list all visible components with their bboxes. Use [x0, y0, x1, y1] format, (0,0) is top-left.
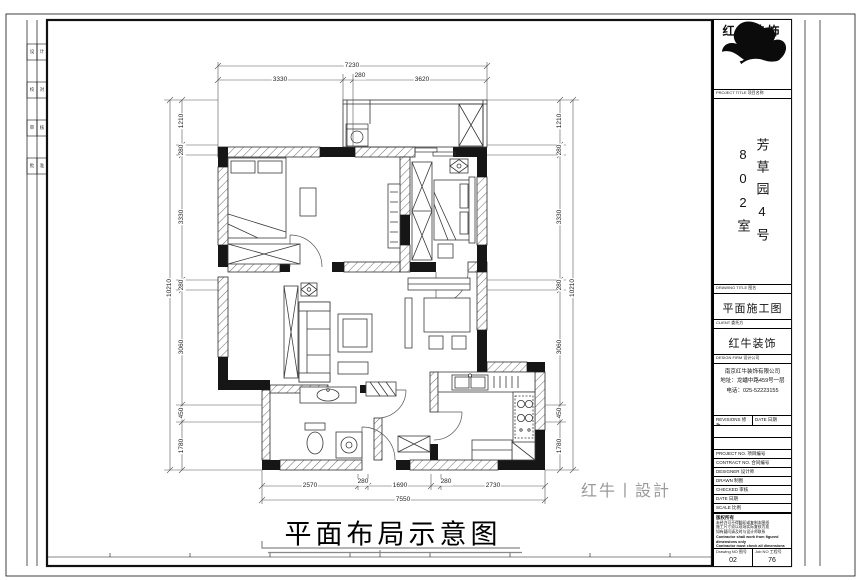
dining-table: [424, 298, 470, 349]
washing-machine: [346, 124, 368, 146]
ac-unit-living: [301, 283, 317, 296]
drawing-title-section: 平面施工图: [714, 294, 791, 320]
binding-cell: 对: [40, 88, 45, 93]
info-row: CONTRACT NO. 合同编号: [714, 459, 791, 468]
hall-cabinet: [366, 382, 396, 396]
client-section: 红牛装饰: [714, 329, 791, 355]
dim-label: 1690: [392, 483, 408, 490]
client-label-row: CLIENT 委托方: [714, 320, 791, 329]
note-line: Contractor shall work from figured dimen…: [716, 535, 789, 544]
toilet: [305, 423, 325, 454]
screen-cabinet: [405, 298, 412, 348]
ac-unit-bedroom: [450, 159, 468, 173]
dim-label: 3060: [179, 339, 186, 355]
binding-cell: 准: [40, 164, 45, 169]
firm-section: 南京红牛装饰有限公司 地址：龙蟠中路459号一层 电话：025-52223155: [714, 364, 791, 416]
dim-label: 2570: [302, 483, 318, 490]
dim-label: 280: [354, 73, 367, 80]
revisions-label: REVISIONS 修改: [714, 416, 753, 426]
shoe-cabinet: [398, 436, 430, 452]
binding-cell: 批: [30, 164, 35, 169]
dim-label: 280: [179, 144, 186, 157]
dim-label: 450: [557, 407, 564, 420]
job-no-label: Job NO 工程号: [755, 550, 789, 555]
project-title-label: PROJECT TITLE 项目名称: [714, 90, 791, 96]
wardrobe-left: [228, 244, 300, 264]
dim-label: 3620: [414, 77, 430, 84]
firm-address: 地址：龙蟠中路459号一层: [717, 378, 788, 387]
drawing-title: 平面施工图: [714, 294, 791, 316]
bed-left: [228, 158, 286, 238]
project-label-row: PROJECT TITLE 项目名称: [714, 90, 791, 99]
dim-label: 2730: [485, 483, 501, 490]
sideboard-dining: [408, 278, 470, 290]
info-row: PROJECT NO. 项目编号: [714, 450, 791, 459]
firm-label-row: DESIGN FIRM 设计公司: [714, 355, 791, 364]
kitchen-counter: [438, 372, 535, 392]
dim-label: 10210: [167, 278, 174, 298]
revisions-header: REVISIONS 修改 DATE 日期: [714, 416, 791, 426]
plan-caption: 平面布局示意图: [285, 513, 502, 552]
date-label: DATE 日期: [753, 416, 791, 426]
vanity-sink: [300, 387, 356, 403]
logo-section: 红牛装饰: [714, 20, 791, 90]
sofa: [299, 302, 330, 382]
sliding-door: [415, 148, 455, 156]
bull-logo-icon: [714, 20, 791, 66]
dresser-left: [388, 184, 400, 248]
dim-label: 280: [357, 479, 370, 486]
dim-label: 280: [440, 479, 453, 486]
drawing-no-value: 02: [716, 557, 750, 564]
info-row: CHECKED 审核: [714, 486, 791, 495]
drawing-no-label: Drawing NO 图号: [716, 550, 750, 555]
dim-label: 1210: [557, 113, 564, 129]
side-table: [338, 362, 368, 374]
firm-label: DESIGN FIRM 设计公司: [714, 355, 791, 361]
info-rows: PROJECT NO. 项目编号 CONTRACT NO. 合同编号 DESIG…: [714, 450, 791, 513]
drawing-title-label-row: DRAWING TITLE 图名: [714, 285, 791, 294]
dim-label: 450: [179, 407, 186, 420]
furniture: [228, 158, 535, 460]
kitchen-base-cabinet: [472, 440, 512, 460]
dim-label: 1780: [557, 438, 564, 454]
dim-label: 3330: [179, 209, 186, 225]
balcony-cabinet: [459, 104, 483, 146]
cabinet-living: [284, 286, 298, 378]
binding-cell: 计: [40, 50, 45, 55]
revision-row-empty: [714, 426, 791, 438]
brand-watermark: 红牛丨設計: [581, 477, 671, 501]
dim-label: 280: [557, 144, 564, 157]
dim-label: 1780: [179, 438, 186, 454]
coffee-table: [338, 314, 372, 352]
dim-label: 3330: [557, 209, 564, 225]
project-name: 芳草园4号802室: [734, 109, 772, 279]
firm-name: 南京红牛装饰有限公司: [717, 368, 788, 377]
dim-label: 1210: [179, 113, 186, 129]
dim-label: 7550: [395, 497, 411, 504]
info-row: DRAWN 制图: [714, 477, 791, 486]
binding-cell: 校: [30, 88, 35, 93]
dim-label: 3060: [557, 339, 564, 355]
dim-label: 280: [179, 279, 186, 292]
drawing-title-label: DRAWING TITLE 图名: [714, 285, 791, 291]
dim-label: 7230: [344, 63, 360, 70]
wardrobe-right: [412, 162, 432, 260]
info-row: DESIGNER 设计师: [714, 468, 791, 477]
notes-section: 版权所有 未经许可不得翻印或复制本图纸 施工尺寸须以现场实际复核为准 如有疑问请…: [714, 513, 791, 549]
dim-label: 280: [557, 279, 564, 292]
binding-cell: 设: [30, 50, 35, 55]
washer-bathroom: [336, 432, 362, 458]
project-name-section: 芳草园4号802室: [714, 99, 791, 285]
drawing-no-cell: Drawing NO 图号 02: [714, 549, 753, 566]
dim-label: 3330: [272, 77, 288, 84]
binding-cell: 核: [40, 126, 45, 131]
info-row: DATE 日期: [714, 495, 791, 504]
desk-left: [300, 188, 316, 216]
binding-cell: 审: [30, 126, 35, 131]
client-name: 红牛装饰: [714, 329, 791, 351]
dim-label: 10210: [570, 278, 577, 298]
revision-row-empty: [714, 438, 791, 450]
job-no-cell: Job NO 工程号 76: [753, 549, 791, 566]
drawing-sheet: 7230 3330 280 3620 2570 280 1690 280 273…: [0, 0, 860, 580]
job-no-value: 76: [755, 557, 789, 564]
stove: [513, 392, 535, 444]
fridge: [512, 442, 535, 460]
nightstand: [438, 244, 453, 258]
firm-phone: 电话：025-52223155: [717, 387, 788, 396]
bed-right: [434, 177, 475, 243]
client-label: CLIENT 委托方: [714, 320, 791, 326]
info-row: SCALE 比例: [714, 504, 791, 513]
number-cells: Drawing NO 图号 02 Job NO 工程号 76: [714, 549, 791, 566]
title-block: 红牛装饰 PROJECT TITLE 项目名称 芳草园4号802室 DRAWIN…: [712, 20, 791, 566]
